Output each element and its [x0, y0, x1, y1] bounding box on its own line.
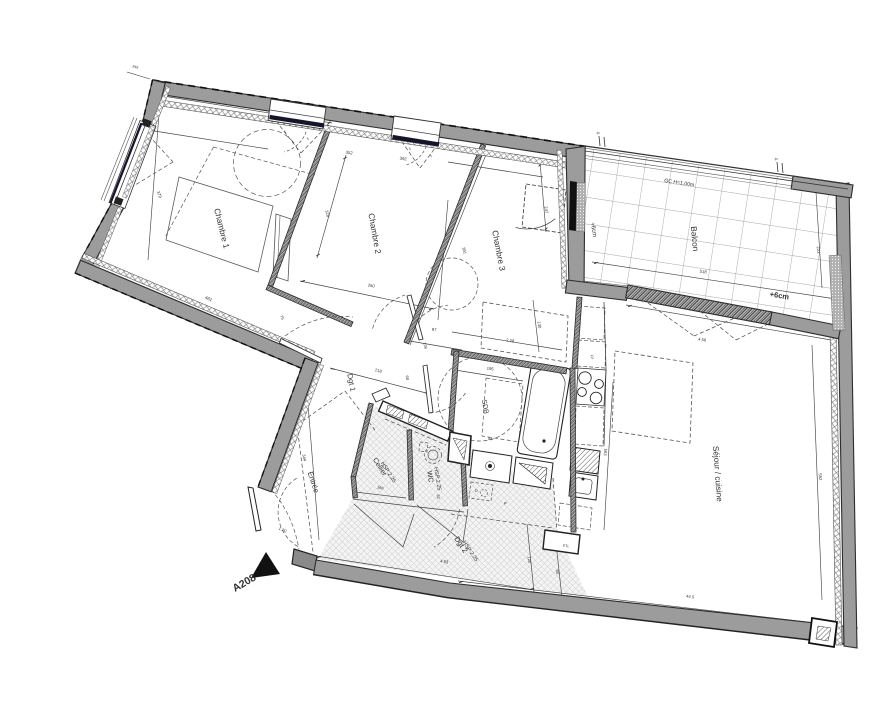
svg-text:223: 223: [816, 246, 822, 254]
svg-text:tp: tp: [774, 157, 778, 161]
svg-text:130: 130: [537, 321, 543, 329]
svg-text:tp: tp: [596, 131, 600, 135]
svg-text:563: 563: [603, 448, 609, 456]
svg-text:247: 247: [544, 206, 550, 214]
svg-text:552: 552: [818, 473, 824, 481]
